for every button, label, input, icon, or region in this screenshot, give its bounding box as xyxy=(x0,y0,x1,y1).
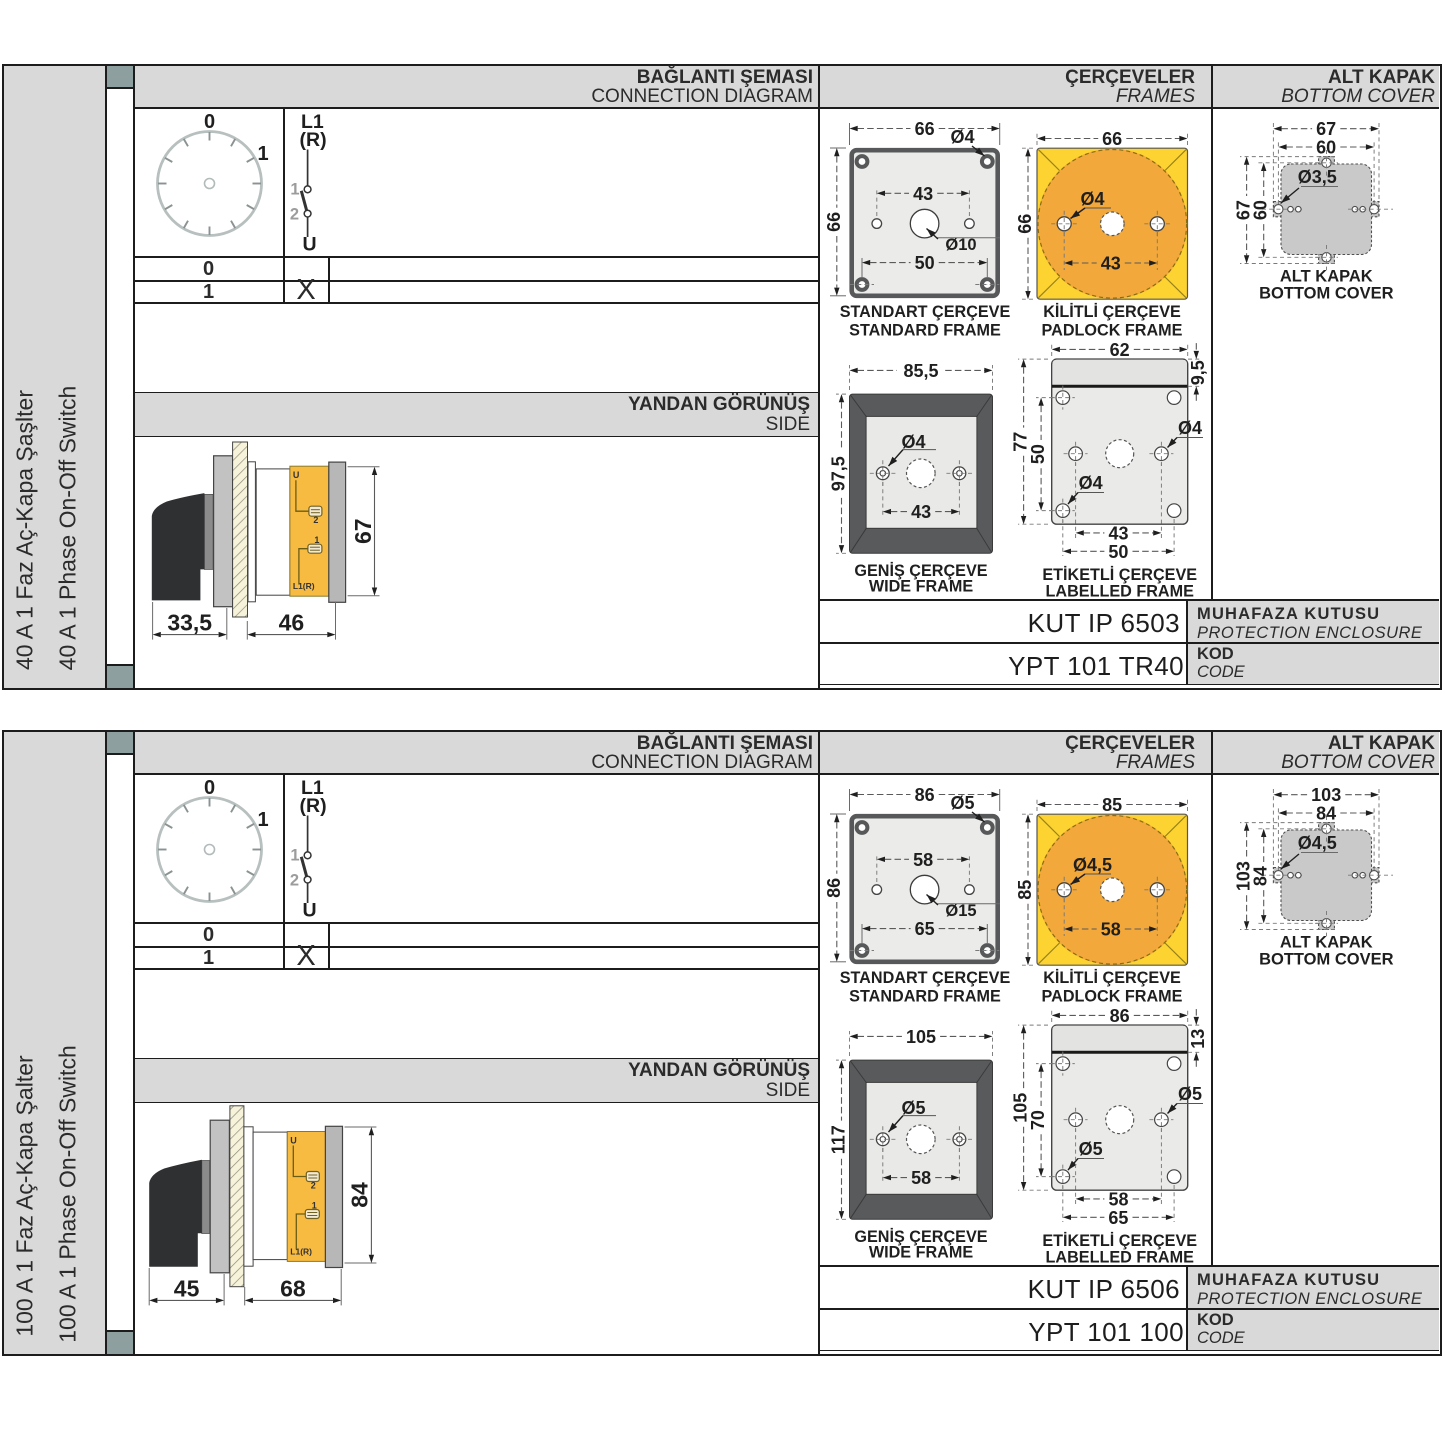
svg-text:Ø4,5: Ø4,5 xyxy=(1298,833,1337,853)
svg-text:Ø4,5: Ø4,5 xyxy=(1073,855,1112,875)
svg-text:STANDARD FRAME: STANDARD FRAME xyxy=(849,988,1001,1006)
svg-text:105: 105 xyxy=(906,1027,936,1047)
svg-text:Ø4: Ø4 xyxy=(901,432,925,452)
svg-text:50: 50 xyxy=(1108,542,1128,562)
svg-text:66: 66 xyxy=(824,212,844,232)
svg-text:BOTTOM COVER: BOTTOM COVER xyxy=(1259,285,1394,303)
svg-text:97,5: 97,5 xyxy=(829,456,849,491)
svg-text:0: 0 xyxy=(204,111,215,133)
svg-text:ETİKETLİ ÇERÇEVE: ETİKETLİ ÇERÇEVE xyxy=(1042,1232,1197,1250)
svg-text:2: 2 xyxy=(290,872,299,890)
svg-text:2: 2 xyxy=(311,1181,316,1191)
svg-text:58: 58 xyxy=(1101,920,1121,940)
svg-text:L1(R): L1(R) xyxy=(290,1246,312,1256)
svg-text:WIDE FRAME: WIDE FRAME xyxy=(869,578,974,596)
svg-text:68: 68 xyxy=(280,1275,306,1301)
svg-text:1: 1 xyxy=(257,143,268,165)
svg-text:Ø4: Ø4 xyxy=(1080,189,1104,209)
svg-text:Ø10: Ø10 xyxy=(945,236,976,254)
svg-text:50: 50 xyxy=(915,253,935,273)
svg-text:KİLİTLİ ÇERÇEVE: KİLİTLİ ÇERÇEVE xyxy=(1043,303,1181,321)
svg-text:65: 65 xyxy=(1108,1208,1128,1228)
svg-text:66: 66 xyxy=(1102,129,1122,149)
svg-text:67: 67 xyxy=(350,518,376,544)
svg-text:(R): (R) xyxy=(300,129,327,151)
svg-text:58: 58 xyxy=(1108,1189,1128,1209)
svg-text:2: 2 xyxy=(290,206,299,224)
svg-text:U: U xyxy=(302,234,316,256)
svg-text:84: 84 xyxy=(1316,804,1336,824)
svg-text:ALT KAPAK: ALT KAPAK xyxy=(1280,268,1373,286)
svg-text:60: 60 xyxy=(1316,138,1336,158)
svg-text:Ø5: Ø5 xyxy=(950,793,974,813)
svg-text:STANDARD FRAME: STANDARD FRAME xyxy=(849,322,1001,340)
svg-text:66: 66 xyxy=(1015,214,1035,234)
svg-text:1: 1 xyxy=(257,809,268,831)
svg-text:67: 67 xyxy=(1316,119,1336,139)
svg-text:1: 1 xyxy=(290,847,299,865)
svg-text:BOTTOM COVER: BOTTOM COVER xyxy=(1259,951,1394,969)
svg-text:LABELLED FRAME: LABELLED FRAME xyxy=(1046,1249,1195,1267)
svg-text:STANDART ÇERÇEVE: STANDART ÇERÇEVE xyxy=(840,303,1011,321)
svg-text:Ø3,5: Ø3,5 xyxy=(1298,167,1337,187)
svg-text:33,5: 33,5 xyxy=(167,610,212,636)
svg-text:86: 86 xyxy=(915,785,935,805)
svg-text:STANDART ÇERÇEVE: STANDART ÇERÇEVE xyxy=(840,969,1011,987)
svg-text:1: 1 xyxy=(290,181,299,199)
svg-text:86: 86 xyxy=(1110,1006,1130,1026)
svg-text:43: 43 xyxy=(911,502,931,522)
svg-text:43: 43 xyxy=(913,184,933,204)
svg-text:85: 85 xyxy=(1102,795,1122,815)
svg-text:L1(R): L1(R) xyxy=(293,581,315,591)
svg-text:43: 43 xyxy=(1101,254,1121,274)
svg-text:Ø4: Ø4 xyxy=(950,127,974,147)
svg-text:50: 50 xyxy=(1028,444,1048,464)
svg-text:58: 58 xyxy=(911,1168,931,1188)
svg-text:KİLİTLİ ÇERÇEVE: KİLİTLİ ÇERÇEVE xyxy=(1043,969,1181,987)
svg-text:13: 13 xyxy=(1188,1029,1208,1049)
svg-text:117: 117 xyxy=(829,1125,849,1154)
svg-text:WIDE FRAME: WIDE FRAME xyxy=(869,1244,974,1262)
svg-text:62: 62 xyxy=(1110,340,1130,360)
svg-text:84: 84 xyxy=(1251,866,1271,886)
svg-text:Ø5: Ø5 xyxy=(901,1098,925,1118)
svg-text:103: 103 xyxy=(1311,785,1341,805)
svg-text:Ø4: Ø4 xyxy=(1079,473,1103,493)
svg-text:60: 60 xyxy=(1251,200,1271,220)
svg-text:46: 46 xyxy=(279,610,305,636)
svg-text:84: 84 xyxy=(347,1182,373,1208)
svg-text:86: 86 xyxy=(824,878,844,898)
svg-text:Ø5: Ø5 xyxy=(1079,1139,1103,1159)
svg-text:Ø15: Ø15 xyxy=(945,902,976,920)
svg-text:Ø4: Ø4 xyxy=(1178,418,1202,438)
svg-text:58: 58 xyxy=(913,850,933,870)
svg-text:(R): (R) xyxy=(300,795,327,817)
svg-text:U: U xyxy=(293,470,300,480)
svg-text:70: 70 xyxy=(1028,1110,1048,1130)
svg-text:9,5: 9,5 xyxy=(1188,360,1208,385)
svg-text:ETİKETLİ ÇERÇEVE: ETİKETLİ ÇERÇEVE xyxy=(1042,566,1197,584)
svg-text:66: 66 xyxy=(915,119,935,139)
svg-text:ALT KAPAK: ALT KAPAK xyxy=(1280,934,1373,952)
svg-text:85: 85 xyxy=(1015,880,1035,900)
svg-text:2: 2 xyxy=(313,515,318,525)
svg-text:U: U xyxy=(290,1136,297,1146)
svg-text:43: 43 xyxy=(1108,523,1128,543)
svg-text:Ø5: Ø5 xyxy=(1178,1084,1202,1104)
svg-text:LABELLED FRAME: LABELLED FRAME xyxy=(1046,583,1195,601)
svg-text:85,5: 85,5 xyxy=(903,361,938,381)
svg-text:U: U xyxy=(302,900,316,922)
svg-text:PADLOCK FRAME: PADLOCK FRAME xyxy=(1042,988,1183,1006)
svg-text:65: 65 xyxy=(915,919,935,939)
svg-text:45: 45 xyxy=(174,1275,200,1301)
svg-text:PADLOCK FRAME: PADLOCK FRAME xyxy=(1042,322,1183,340)
svg-text:0: 0 xyxy=(204,777,215,799)
